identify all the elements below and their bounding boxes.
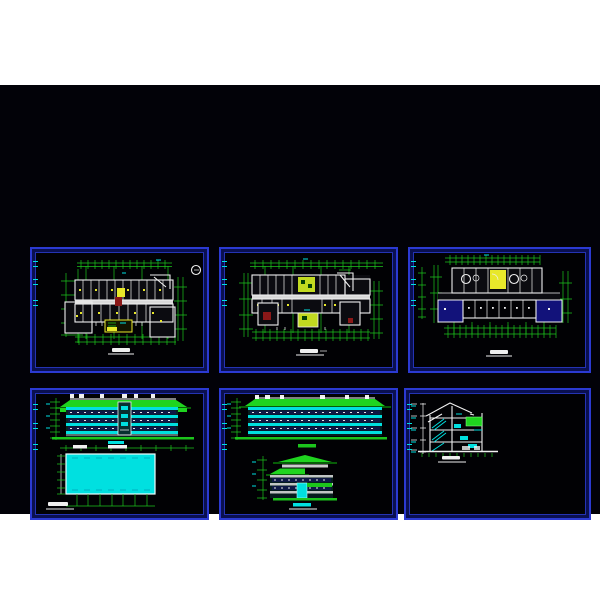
- viewport-label-mark: [33, 300, 38, 306]
- viewport-floor-plan-1[interactable]: [30, 247, 209, 373]
- building-section-drawing: [410, 394, 585, 514]
- viewport-floor-plan-2[interactable]: [219, 247, 398, 373]
- page: { "app": { "name": "cad-drawing-sheet", …: [0, 0, 600, 600]
- front-rear-elevation-drawing: [36, 394, 203, 514]
- viewport-floor-plan-3[interactable]: [408, 247, 591, 373]
- floor-plan-2-drawing: [225, 253, 392, 367]
- viewport-frame: [413, 252, 586, 368]
- viewport-label-mark: [222, 423, 227, 429]
- viewport-section[interactable]: [404, 388, 591, 520]
- viewport-label-mark: [222, 261, 227, 267]
- viewport-label-mark: [407, 423, 412, 429]
- viewport-frame: [409, 393, 586, 515]
- viewport-label-mark: [407, 404, 412, 410]
- viewport-frame: [224, 393, 393, 515]
- floor-plan-3-drawing: [414, 253, 585, 367]
- viewport-frame: [35, 393, 204, 515]
- viewport-label-mark: [33, 261, 38, 267]
- viewport-label-mark: [407, 444, 412, 450]
- viewport-label-mark: [222, 300, 227, 306]
- viewport-label-mark: [222, 279, 227, 285]
- viewport-label-mark: [33, 444, 38, 450]
- viewport-label-mark: [222, 444, 227, 450]
- viewport-label-mark: [33, 279, 38, 285]
- viewport-label-mark: [33, 423, 38, 429]
- viewport-label-mark: [222, 404, 227, 410]
- viewport-frame: [35, 252, 204, 368]
- viewport-label-mark: [411, 300, 416, 306]
- side-elevations-drawing: [225, 394, 392, 514]
- viewport-label-mark: [33, 404, 38, 410]
- cad-workspace[interactable]: [0, 85, 600, 514]
- viewport-elevations-front[interactable]: [30, 388, 209, 520]
- viewport-label-mark: [411, 261, 416, 267]
- floor-plan-1-drawing: [36, 253, 203, 367]
- viewport-frame: [224, 252, 393, 368]
- viewport-label-mark: [411, 279, 416, 285]
- viewport-elevations-side[interactable]: [219, 388, 398, 520]
